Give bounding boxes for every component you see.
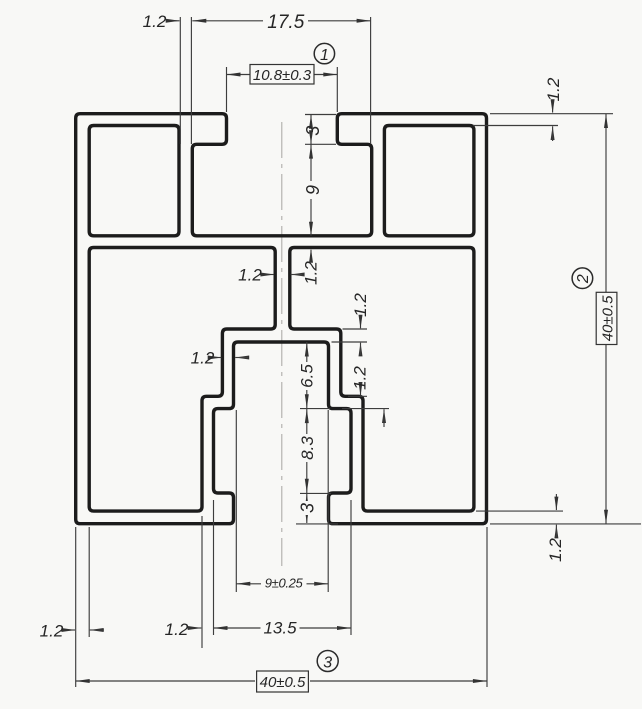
svg-text:1.2: 1.2	[351, 293, 370, 317]
svg-text:1.2: 1.2	[351, 366, 370, 390]
svg-text:9: 9	[303, 185, 323, 195]
svg-text:3: 3	[323, 654, 332, 671]
svg-text:17.5: 17.5	[267, 12, 304, 33]
svg-text:1.2: 1.2	[238, 266, 262, 285]
svg-text:1: 1	[320, 47, 329, 64]
svg-text:3: 3	[297, 503, 317, 513]
svg-text:8.3: 8.3	[298, 436, 317, 460]
svg-text:1.2: 1.2	[546, 538, 565, 562]
svg-text:13.5: 13.5	[263, 618, 297, 637]
svg-text:3: 3	[303, 126, 323, 136]
svg-text:10.8±0.3: 10.8±0.3	[253, 67, 312, 84]
svg-text:40±0.5: 40±0.5	[260, 674, 306, 691]
svg-text:40±0.5: 40±0.5	[599, 295, 616, 341]
svg-text:1.2: 1.2	[40, 621, 64, 640]
svg-text:1.2: 1.2	[143, 12, 167, 31]
svg-text:1.2: 1.2	[165, 620, 189, 639]
svg-text:2: 2	[575, 274, 592, 284]
svg-text:1.2: 1.2	[191, 349, 215, 368]
svg-text:9±0.25: 9±0.25	[265, 576, 304, 591]
svg-text:1.2: 1.2	[302, 261, 321, 285]
svg-text:1.2: 1.2	[544, 77, 563, 101]
svg-text:6.5: 6.5	[297, 364, 316, 388]
